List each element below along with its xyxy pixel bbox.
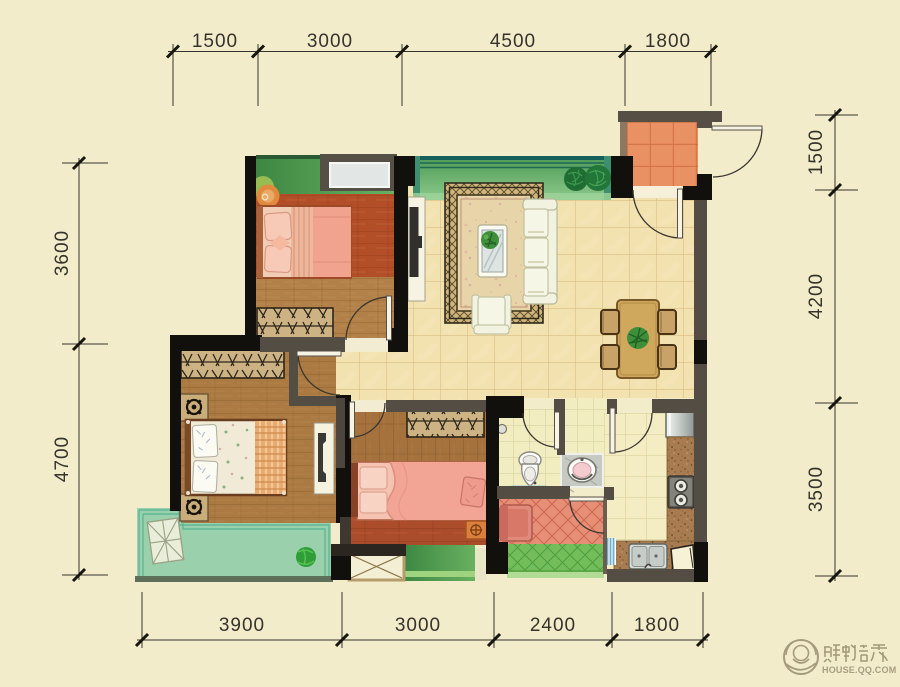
svg-text:4700: 4700 [52,436,73,482]
svg-text:1500: 1500 [192,31,238,52]
svg-text:3900: 3900 [219,615,265,636]
svg-text:HOUSE.QQ.COM: HOUSE.QQ.COM [822,665,896,675]
svg-text:4200: 4200 [806,273,827,319]
svg-text:1800: 1800 [634,615,680,636]
svg-text:3500: 3500 [806,466,827,512]
svg-text:3600: 3600 [52,230,73,276]
svg-text:3000: 3000 [307,31,353,52]
svg-text:3000: 3000 [395,615,441,636]
svg-text:4500: 4500 [490,31,536,52]
svg-text:1500: 1500 [806,129,827,175]
svg-text:1800: 1800 [645,31,691,52]
svg-text:2400: 2400 [530,615,576,636]
